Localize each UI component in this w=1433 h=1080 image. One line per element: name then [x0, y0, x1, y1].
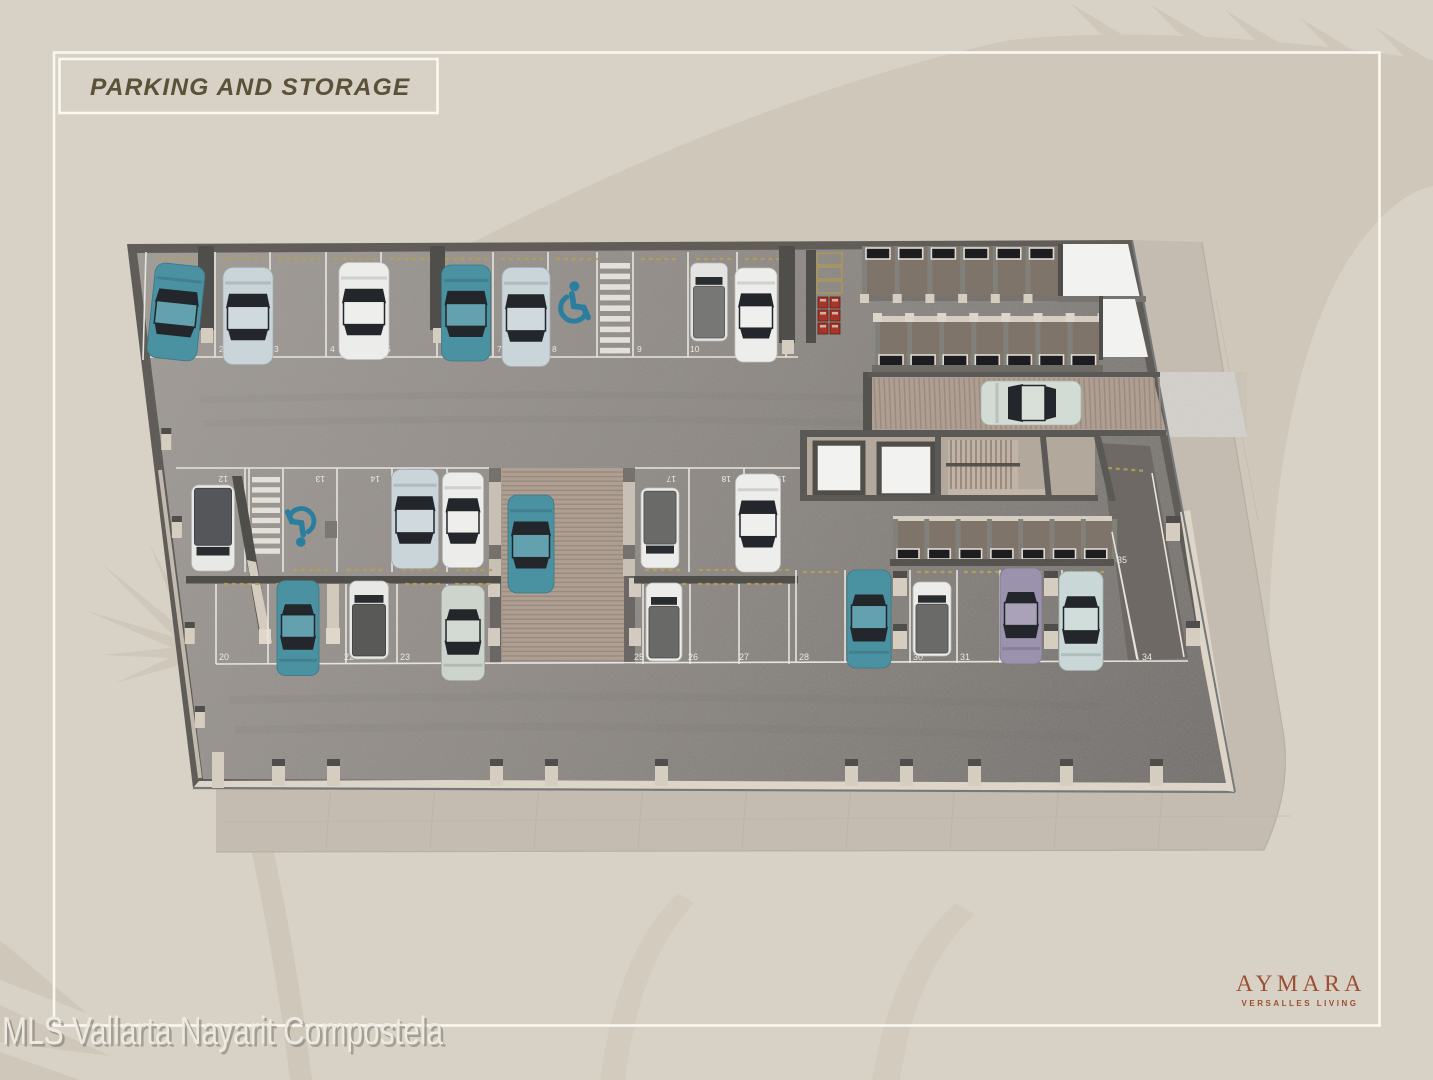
svg-text:7: 7 [497, 344, 502, 354]
svg-text:14: 14 [370, 474, 380, 484]
svg-text:VERSALLES LIVING: VERSALLES LIVING [1242, 999, 1359, 1008]
svg-text:28: 28 [799, 652, 809, 662]
svg-text:MLS Vallarta Nayarit Compostel: MLS Vallarta Nayarit Compostela [2, 1010, 443, 1053]
svg-text:20: 20 [219, 652, 229, 662]
svg-text:12: 12 [218, 474, 228, 484]
svg-text:26: 26 [688, 652, 698, 662]
svg-text:17: 17 [666, 474, 676, 484]
svg-text:31: 31 [960, 652, 970, 662]
svg-text:8: 8 [552, 344, 557, 354]
svg-text:PARKING AND STORAGE: PARKING AND STORAGE [90, 74, 410, 101]
svg-text:AYMARA: AYMARA [1236, 971, 1366, 997]
svg-text:18: 18 [721, 474, 731, 484]
svg-text:27: 27 [739, 652, 749, 662]
svg-text:3: 3 [274, 344, 279, 354]
svg-text:10: 10 [690, 344, 700, 354]
svg-text:25: 25 [634, 652, 644, 662]
svg-text:4: 4 [330, 344, 335, 354]
svg-text:13: 13 [315, 474, 325, 484]
svg-text:9: 9 [637, 344, 642, 354]
svg-text:34: 34 [1142, 652, 1152, 662]
svg-text:23: 23 [400, 652, 410, 662]
